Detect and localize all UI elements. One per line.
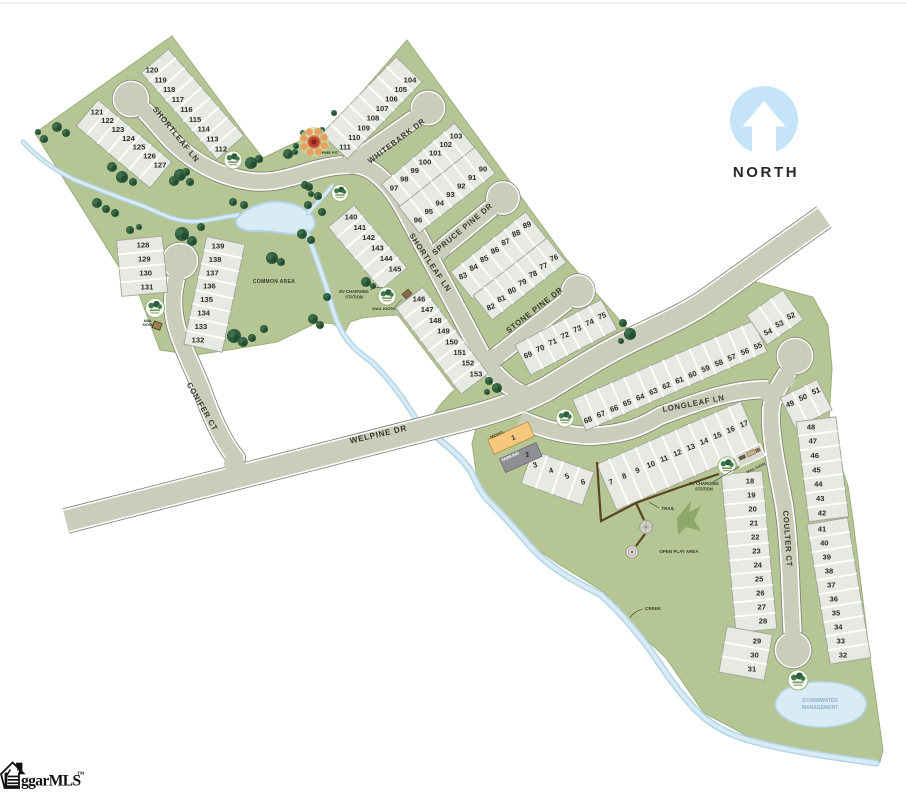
svg-text:114: 114 <box>198 125 211 134</box>
svg-text:27: 27 <box>757 602 765 611</box>
svg-text:138: 138 <box>209 255 222 264</box>
svg-text:CREEK: CREEK <box>645 606 662 611</box>
svg-text:146: 146 <box>413 294 426 303</box>
svg-text:100: 100 <box>419 157 432 166</box>
svg-text:104: 104 <box>404 75 417 84</box>
svg-text:32: 32 <box>839 650 847 659</box>
svg-text:36: 36 <box>829 594 837 603</box>
svg-text:ggarMLS: ggarMLS <box>21 773 81 790</box>
svg-text:105: 105 <box>394 85 407 94</box>
svg-text:102: 102 <box>439 140 452 149</box>
svg-text:37: 37 <box>827 580 835 589</box>
svg-text:92: 92 <box>457 181 465 190</box>
svg-text:109: 109 <box>357 123 370 132</box>
svg-text:44: 44 <box>814 480 823 489</box>
svg-text:130: 130 <box>139 268 152 277</box>
svg-text:135: 135 <box>200 295 213 304</box>
svg-text:NORTH: NORTH <box>733 164 799 181</box>
svg-text:128: 128 <box>137 240 150 249</box>
svg-text:COMMON AREA: COMMON AREA <box>253 279 295 285</box>
svg-text:136: 136 <box>203 282 216 291</box>
svg-text:22: 22 <box>751 532 759 541</box>
svg-text:93: 93 <box>446 190 454 199</box>
svg-text:108: 108 <box>367 114 380 123</box>
svg-text:47: 47 <box>809 437 817 446</box>
svg-text:35: 35 <box>832 608 841 617</box>
svg-text:™: ™ <box>77 770 85 779</box>
svg-text:126: 126 <box>143 152 156 161</box>
svg-text:103: 103 <box>450 131 463 140</box>
svg-text:48: 48 <box>807 422 815 431</box>
svg-text:26: 26 <box>756 588 764 597</box>
svg-text:97: 97 <box>390 183 398 192</box>
svg-text:KIOSK: KIOSK <box>143 323 154 327</box>
svg-text:41: 41 <box>818 524 827 533</box>
svg-text:30: 30 <box>750 650 758 659</box>
svg-text:153: 153 <box>470 369 483 378</box>
svg-text:152: 152 <box>462 359 475 368</box>
svg-text:124: 124 <box>122 134 135 143</box>
svg-text:90: 90 <box>479 164 487 173</box>
svg-text:111: 111 <box>339 142 352 151</box>
svg-text:127: 127 <box>154 160 167 169</box>
svg-text:18: 18 <box>746 476 754 485</box>
svg-text:28: 28 <box>759 616 767 625</box>
svg-text:19: 19 <box>747 490 755 499</box>
svg-text:24: 24 <box>754 560 763 569</box>
svg-text:MANAGEMENT: MANAGEMENT <box>802 705 838 711</box>
svg-text:140: 140 <box>345 212 358 221</box>
svg-text:42: 42 <box>818 508 826 517</box>
svg-text:25: 25 <box>755 574 764 583</box>
svg-text:94: 94 <box>435 198 444 207</box>
svg-text:121: 121 <box>91 107 104 116</box>
svg-text:134: 134 <box>197 309 210 318</box>
svg-text:OPEN PLAY AREA: OPEN PLAY AREA <box>659 549 699 554</box>
svg-text:145: 145 <box>389 264 402 273</box>
svg-text:43: 43 <box>816 494 824 503</box>
svg-text:38: 38 <box>825 566 833 575</box>
svg-text:110: 110 <box>348 133 360 142</box>
svg-text:95: 95 <box>425 207 434 216</box>
svg-text:MAIL KIOSK: MAIL KIOSK <box>372 306 396 311</box>
svg-text:113: 113 <box>206 135 218 144</box>
svg-text:101: 101 <box>429 149 442 158</box>
svg-text:139: 139 <box>212 241 225 250</box>
svg-text:96: 96 <box>414 215 422 224</box>
svg-text:123: 123 <box>112 125 125 134</box>
svg-text:147: 147 <box>421 305 434 314</box>
svg-text:46: 46 <box>810 451 818 460</box>
svg-text:132: 132 <box>192 335 205 344</box>
svg-text:34: 34 <box>834 622 843 631</box>
svg-text:29: 29 <box>753 636 761 645</box>
svg-text:40: 40 <box>820 538 828 547</box>
svg-text:91: 91 <box>468 173 477 182</box>
svg-text:117: 117 <box>172 95 184 104</box>
svg-text:99: 99 <box>410 166 418 175</box>
svg-text:149: 149 <box>437 327 450 336</box>
svg-text:151: 151 <box>453 348 466 357</box>
svg-text:118: 118 <box>163 85 175 94</box>
svg-text:150: 150 <box>445 337 458 346</box>
svg-text:112: 112 <box>215 144 227 153</box>
svg-text:39: 39 <box>822 552 830 561</box>
svg-text:31: 31 <box>748 664 757 673</box>
svg-text:141: 141 <box>353 223 366 232</box>
svg-text:131: 131 <box>141 282 154 291</box>
svg-text:119: 119 <box>154 75 166 84</box>
svg-text:116: 116 <box>180 105 192 114</box>
svg-text:21: 21 <box>750 518 759 527</box>
svg-text:STORMWATER: STORMWATER <box>802 698 838 704</box>
svg-text:STATION: STATION <box>695 487 713 492</box>
svg-text:144: 144 <box>380 254 393 263</box>
svg-text:98: 98 <box>400 175 408 184</box>
svg-text:125: 125 <box>133 143 146 152</box>
svg-text:115: 115 <box>189 115 202 124</box>
svg-text:106: 106 <box>385 95 398 104</box>
svg-text:FIRE PIT: FIRE PIT <box>322 150 339 155</box>
svg-text:133: 133 <box>195 322 208 331</box>
svg-text:137: 137 <box>206 268 219 277</box>
svg-text:142: 142 <box>362 233 375 242</box>
svg-text:148: 148 <box>429 316 442 325</box>
svg-text:122: 122 <box>101 116 114 125</box>
svg-text:33: 33 <box>836 636 844 645</box>
svg-text:23: 23 <box>752 546 760 555</box>
svg-text:STATION: STATION <box>345 295 363 300</box>
svg-text:129: 129 <box>138 254 151 263</box>
svg-text:45: 45 <box>812 465 821 474</box>
svg-text:TRAIL: TRAIL <box>661 506 674 511</box>
svg-text:120: 120 <box>146 65 159 74</box>
svg-text:107: 107 <box>376 104 389 113</box>
svg-text:20: 20 <box>748 504 756 513</box>
svg-text:EV CHARGING: EV CHARGING <box>339 289 369 294</box>
svg-text:143: 143 <box>371 244 384 253</box>
